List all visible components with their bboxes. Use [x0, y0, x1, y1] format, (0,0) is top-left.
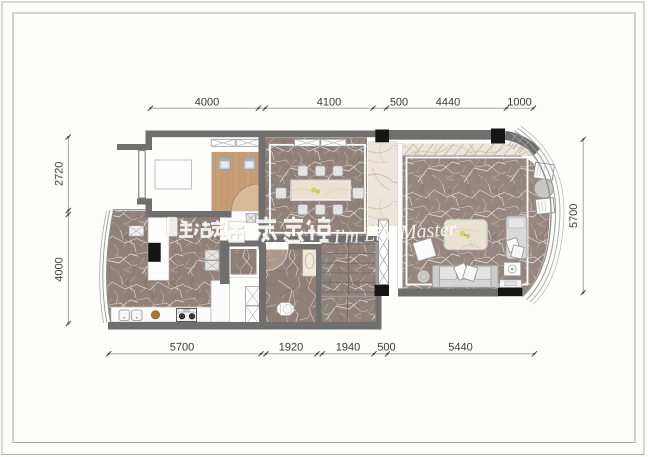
svg-text:5700: 5700: [170, 342, 194, 354]
svg-text:5440: 5440: [448, 342, 472, 354]
svg-text:4000: 4000: [54, 257, 66, 281]
svg-text:1000: 1000: [507, 97, 531, 109]
svg-text:4440: 4440: [436, 97, 460, 109]
svg-text:2720: 2720: [54, 162, 66, 186]
svg-text:4100: 4100: [317, 97, 341, 109]
svg-text:5700: 5700: [568, 204, 580, 228]
svg-text:1940: 1940: [336, 342, 360, 354]
svg-text:500: 500: [377, 342, 395, 354]
svg-text:4000: 4000: [195, 97, 219, 109]
svg-text:500: 500: [390, 97, 408, 109]
svg-text:1920: 1920: [279, 342, 303, 354]
